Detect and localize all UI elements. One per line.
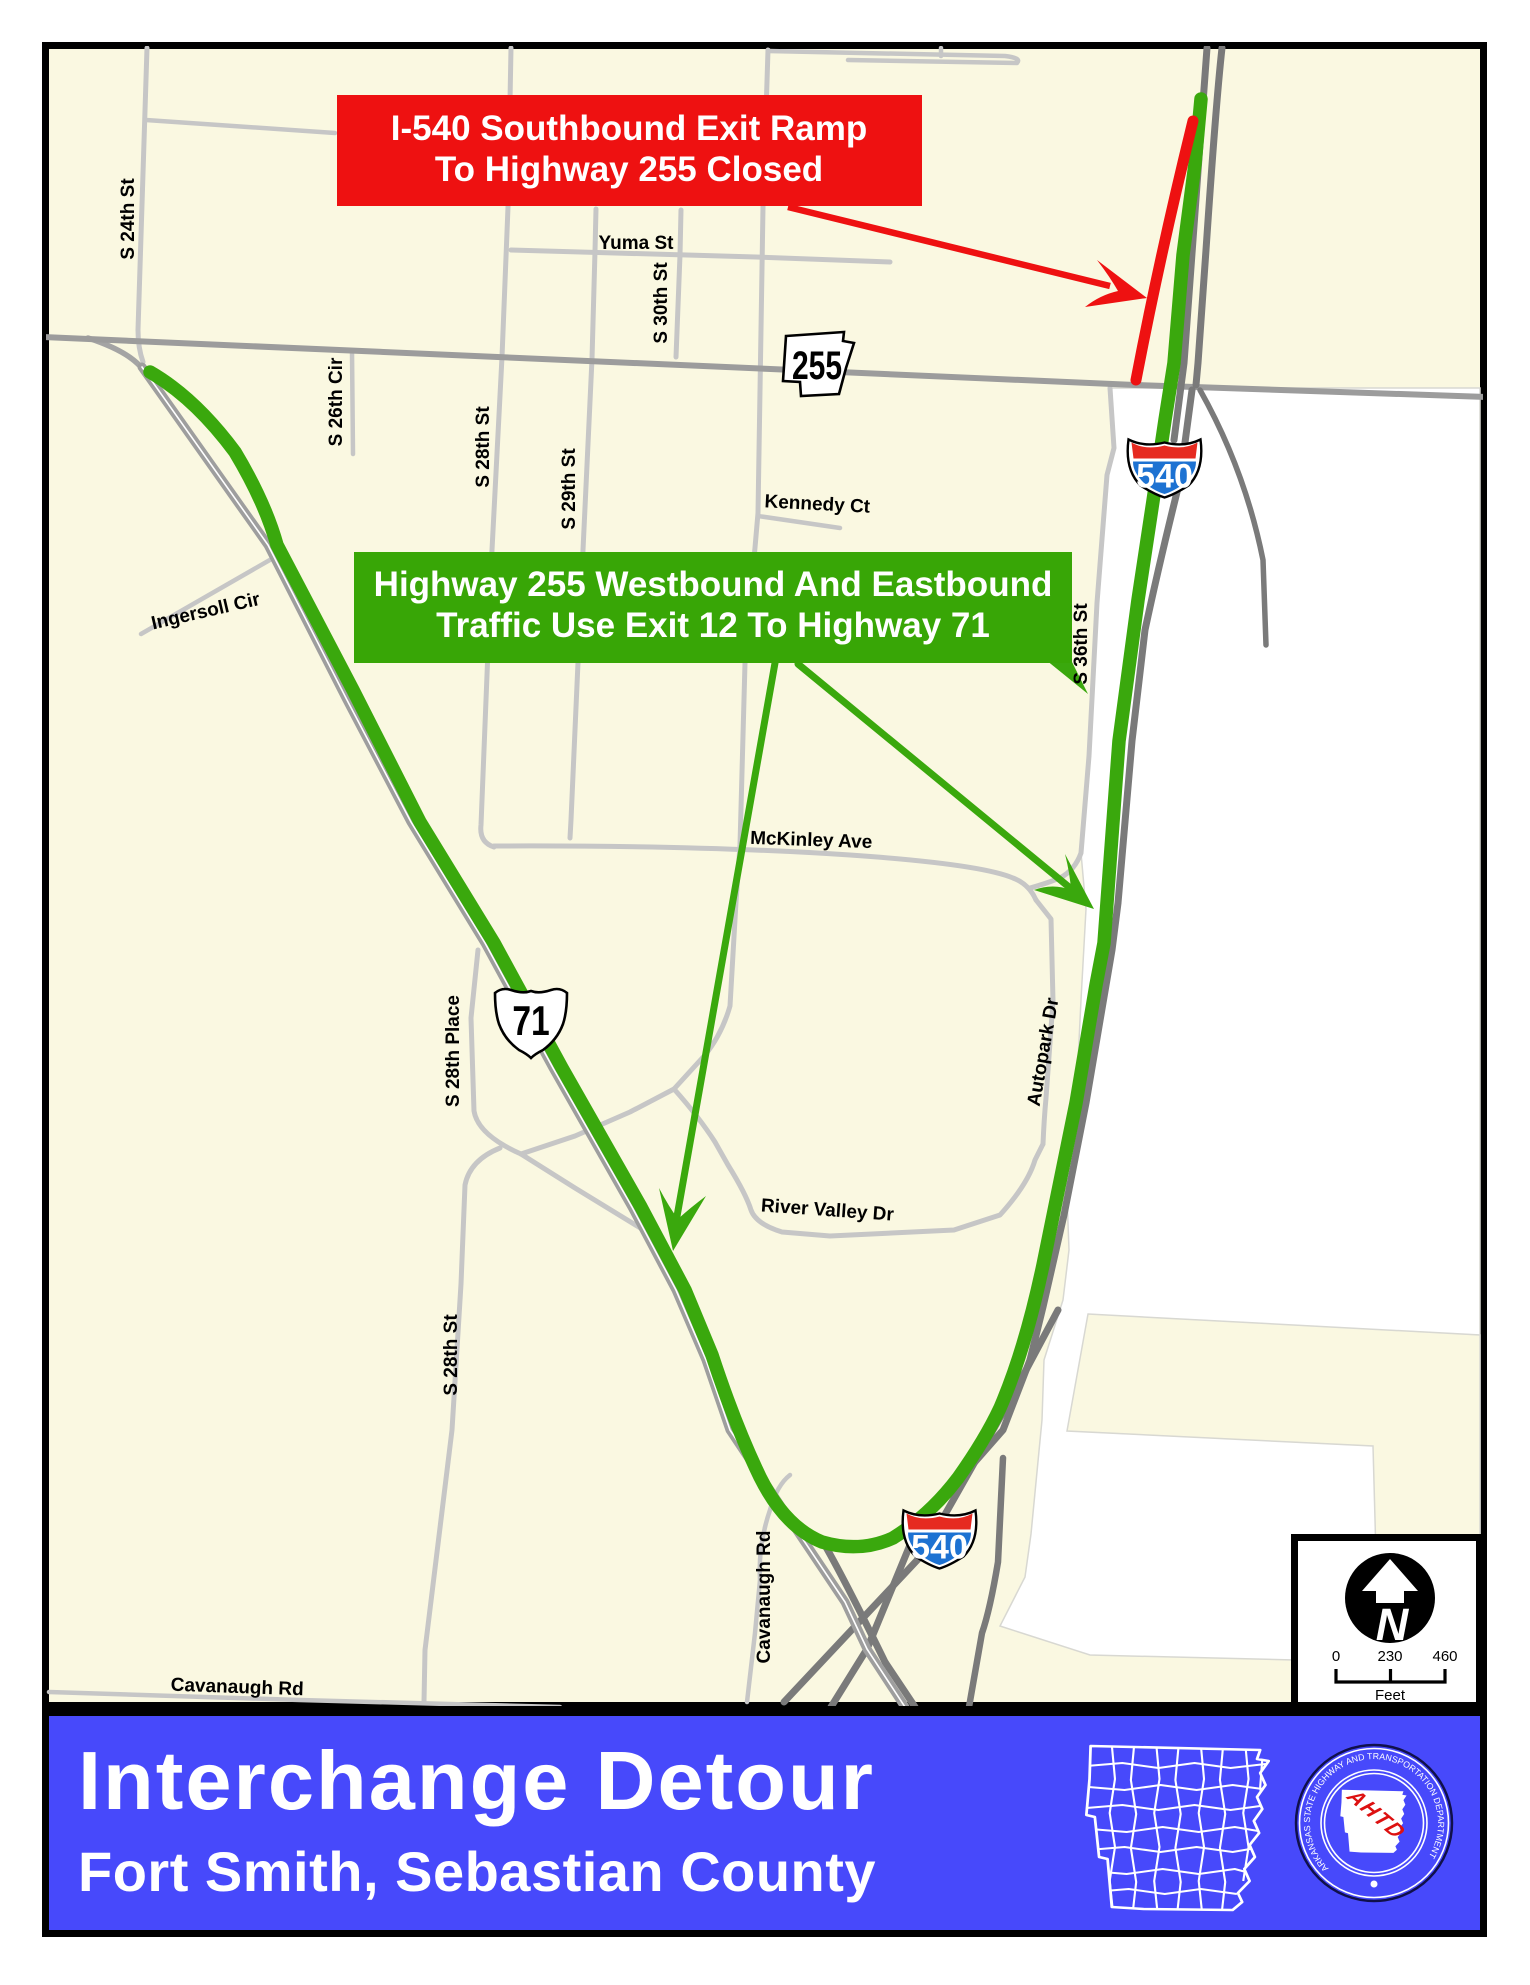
svg-text:S 30th St: S 30th St (651, 262, 672, 344)
svg-text:Yuma St: Yuma St (599, 233, 675, 254)
svg-text:255: 255 (792, 344, 842, 388)
svg-text:I-540 Southbound Exit Ramp: I-540 Southbound Exit Ramp (391, 109, 867, 148)
svg-text:S 29th St: S 29th St (559, 448, 580, 530)
svg-text:Fort Smith, Sebastian County: Fort Smith, Sebastian County (78, 1840, 876, 1903)
svg-text:Cavanaugh Rd: Cavanaugh Rd (754, 1530, 775, 1663)
svg-text:S 24th St: S 24th St (118, 178, 139, 260)
svg-text:S 26th Cir: S 26th Cir (326, 357, 347, 446)
svg-text:460: 460 (1432, 1648, 1457, 1665)
svg-text:S 28th St: S 28th St (441, 1314, 462, 1396)
svg-text:To Highway 255 Closed: To Highway 255 Closed (435, 150, 823, 189)
svg-text:71: 71 (512, 999, 549, 1045)
svg-text:230: 230 (1377, 1648, 1402, 1665)
svg-text:McKinley Ave: McKinley Ave (750, 828, 873, 853)
svg-text:S 28th St: S 28th St (473, 406, 494, 488)
svg-text:S 28th Place: S 28th Place (443, 995, 464, 1107)
svg-text:Traffic Use Exit 12 To Highway: Traffic Use Exit 12 To Highway 71 (436, 606, 990, 645)
svg-text:N: N (1376, 1599, 1410, 1650)
svg-text:Highway 255 Westbound And East: Highway 255 Westbound And Eastbound (374, 565, 1053, 604)
svg-text:540: 540 (1136, 458, 1193, 496)
svg-text:S 36th St: S 36th St (1071, 603, 1092, 685)
svg-text:Interchange Detour: Interchange Detour (78, 1734, 875, 1827)
svg-text:0: 0 (1332, 1648, 1340, 1665)
svg-text:Feet: Feet (1375, 1687, 1406, 1704)
svg-text:540: 540 (911, 1529, 968, 1567)
